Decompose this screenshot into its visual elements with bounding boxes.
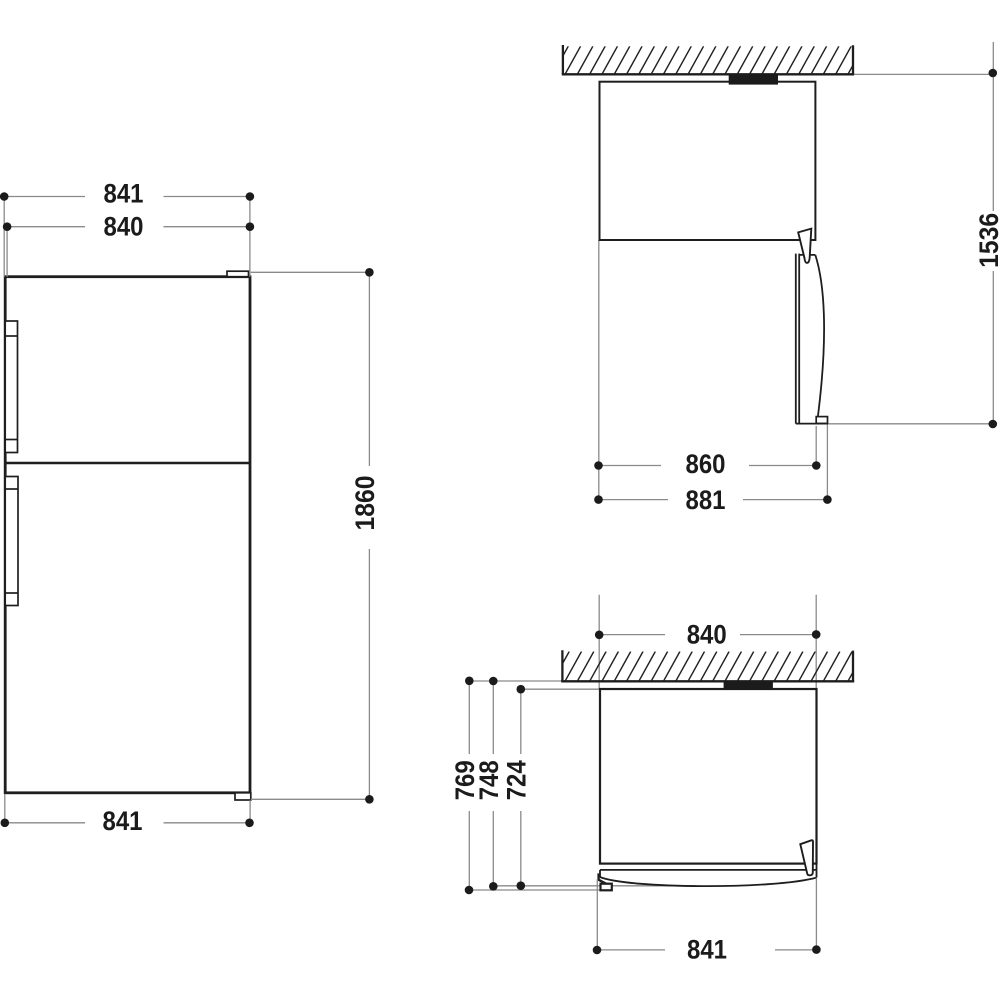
- svg-text:841: 841: [103, 806, 143, 836]
- svg-text:1536: 1536: [974, 213, 1000, 268]
- svg-text:748: 748: [474, 760, 504, 800]
- svg-text:881: 881: [686, 485, 726, 515]
- svg-text:841: 841: [104, 178, 144, 208]
- svg-text:1860: 1860: [350, 476, 380, 531]
- svg-text:840: 840: [687, 620, 727, 650]
- svg-text:840: 840: [104, 212, 144, 242]
- svg-text:841: 841: [687, 935, 727, 965]
- svg-text:860: 860: [686, 449, 726, 479]
- svg-text:724: 724: [501, 760, 531, 800]
